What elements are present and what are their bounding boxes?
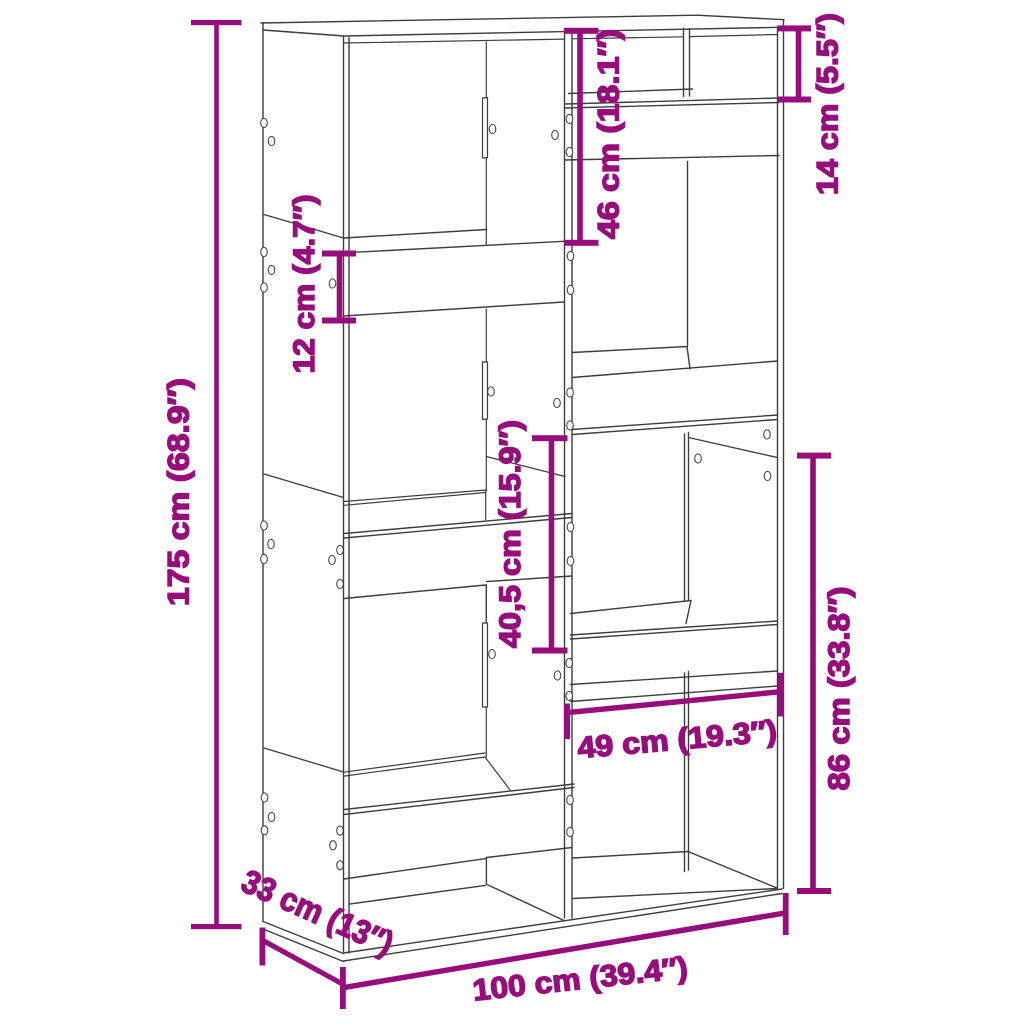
svg-text:86 cm (33.8″): 86 cm (33.8″) <box>823 587 856 791</box>
svg-text:49 cm (19.3″): 49 cm (19.3″) <box>576 715 778 765</box>
svg-text:12 cm (4.7″): 12 cm (4.7″) <box>288 195 321 374</box>
svg-text:46 cm (18.1″): 46 cm (18.1″) <box>593 29 626 239</box>
svg-text:14 cm (5.5″): 14 cm (5.5″) <box>812 13 845 195</box>
svg-text:40,5 cm (15.9″): 40,5 cm (15.9″) <box>494 420 527 648</box>
svg-text:175 cm (68.9″): 175 cm (68.9″) <box>163 378 196 606</box>
